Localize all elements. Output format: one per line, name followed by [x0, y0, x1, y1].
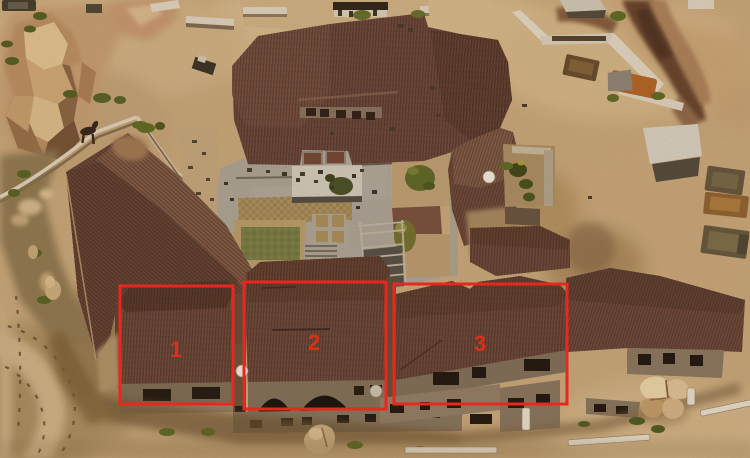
svg-text:1: 1 — [170, 337, 182, 362]
svg-text:2: 2 — [308, 330, 320, 355]
svg-text:3: 3 — [474, 331, 486, 356]
